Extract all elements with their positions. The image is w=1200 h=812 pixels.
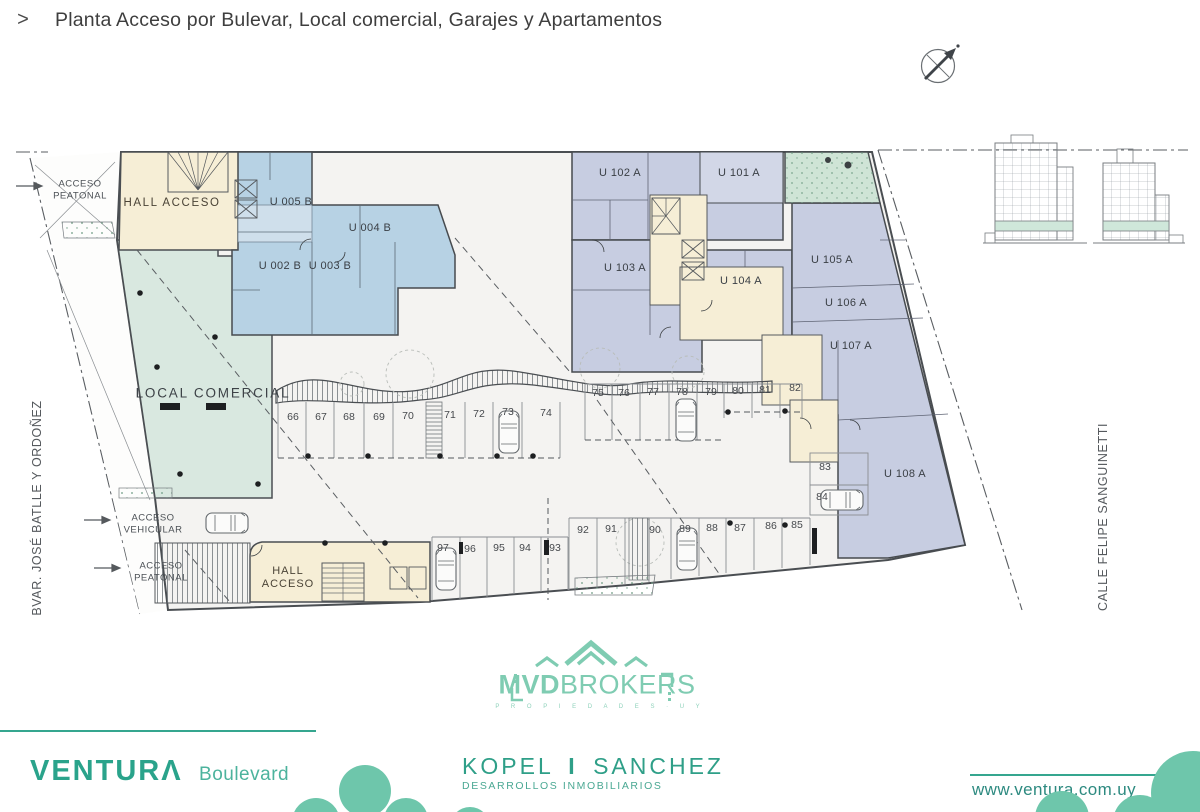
street-label-right: CALLE FELIPE SANGUINETTI — [1096, 423, 1110, 611]
building-elevations — [983, 135, 1185, 243]
parking-number: 92 — [577, 524, 589, 536]
footer-divider-left — [0, 730, 316, 732]
parking-number: 70 — [402, 410, 414, 422]
parking-number: 68 — [343, 411, 355, 423]
unit-label: U 104 A — [720, 275, 762, 287]
unit-label: U 108 A — [884, 468, 926, 480]
parking-number: 86 — [765, 520, 777, 532]
parking-number: 71 — [444, 409, 456, 421]
parking-number: 80 — [732, 385, 744, 397]
acceso-peatonal-bottom-label: ACCESOPEATONAL — [134, 561, 188, 584]
parking-number: 96 — [464, 543, 476, 555]
parking-number: 72 — [473, 408, 485, 420]
parking-number: 95 — [493, 542, 505, 554]
mvdbrokers-tagline: P R O P I E D A D E S · U Y — [495, 704, 704, 710]
parking-number: 90 — [649, 524, 661, 536]
parking-number: 85 — [791, 519, 803, 531]
parking-number: 66 — [287, 411, 299, 423]
terrace-area — [785, 152, 880, 203]
page-title: Planta Acceso por Bulevar, Local comerci… — [55, 9, 662, 32]
compass-icon — [922, 44, 960, 82]
parking-number: 69 — [373, 411, 385, 423]
unit-label: U 103 A — [604, 262, 646, 274]
local-comercial-label: LOCAL COMERCIAL — [136, 386, 291, 401]
ventura-logo: VENTURΛ Boulevard — [30, 755, 289, 788]
acceso-vehicular-label: ACCESOVEHICULAR — [124, 513, 183, 536]
unit-label: U 102 A — [599, 167, 641, 179]
unit-label: U 105 A — [811, 254, 853, 266]
unit-label: U 003 B — [309, 260, 352, 272]
parking-number: 78 — [676, 386, 688, 398]
footer-divider-right — [970, 774, 1170, 776]
kopel-sanchez-logo: KOPEL I SANCHEZ DESARROLLOS INMOBILIARIO… — [462, 753, 724, 792]
hall-acceso-top-label: HALL ACCESO — [123, 197, 220, 209]
parking-number: 79 — [705, 386, 717, 398]
parking-number: 91 — [605, 523, 617, 535]
unit-label: U 101 A — [718, 167, 760, 179]
parking-number: 76 — [618, 387, 630, 399]
unit-label: U 002 B — [259, 260, 302, 272]
parking-number: 83 — [819, 461, 831, 473]
parking-number: 75 — [592, 387, 604, 399]
parking-number: 67 — [315, 411, 327, 423]
parking-number: 84 — [816, 491, 828, 503]
brochure-page: > Planta Acceso por Bulevar, Local comer… — [0, 0, 1200, 812]
title-chevron: > — [17, 9, 29, 32]
unit-label: U 106 A — [825, 297, 867, 309]
street-label-left: BVAR. JOSÉ BATLLE Y ORDOÑEZ — [30, 400, 44, 615]
unit-label: U 004 B — [349, 222, 392, 234]
mvdbrokers-wordmark: MVDBROKERS — [498, 670, 695, 701]
parking-number: 97 — [437, 542, 449, 554]
parking-number: 89 — [679, 523, 691, 535]
unit-label: U 005 B — [270, 196, 313, 208]
parking-number: 82 — [789, 382, 801, 394]
hall-acceso-bottom-label: HALLACCESO — [262, 565, 314, 591]
parking-number: 88 — [706, 522, 718, 534]
parking-number: 94 — [519, 542, 531, 554]
parking-number: 87 — [734, 522, 746, 534]
parking-number: 74 — [540, 407, 552, 419]
acceso-peatonal-top-label: ACCESOPEATONAL — [53, 179, 107, 202]
parking-number: 73 — [502, 406, 514, 418]
unit-label: U 107 A — [830, 340, 872, 352]
parking-number: 77 — [647, 386, 659, 398]
parking-number: 81 — [759, 384, 771, 396]
parking-number: 93 — [549, 542, 561, 554]
